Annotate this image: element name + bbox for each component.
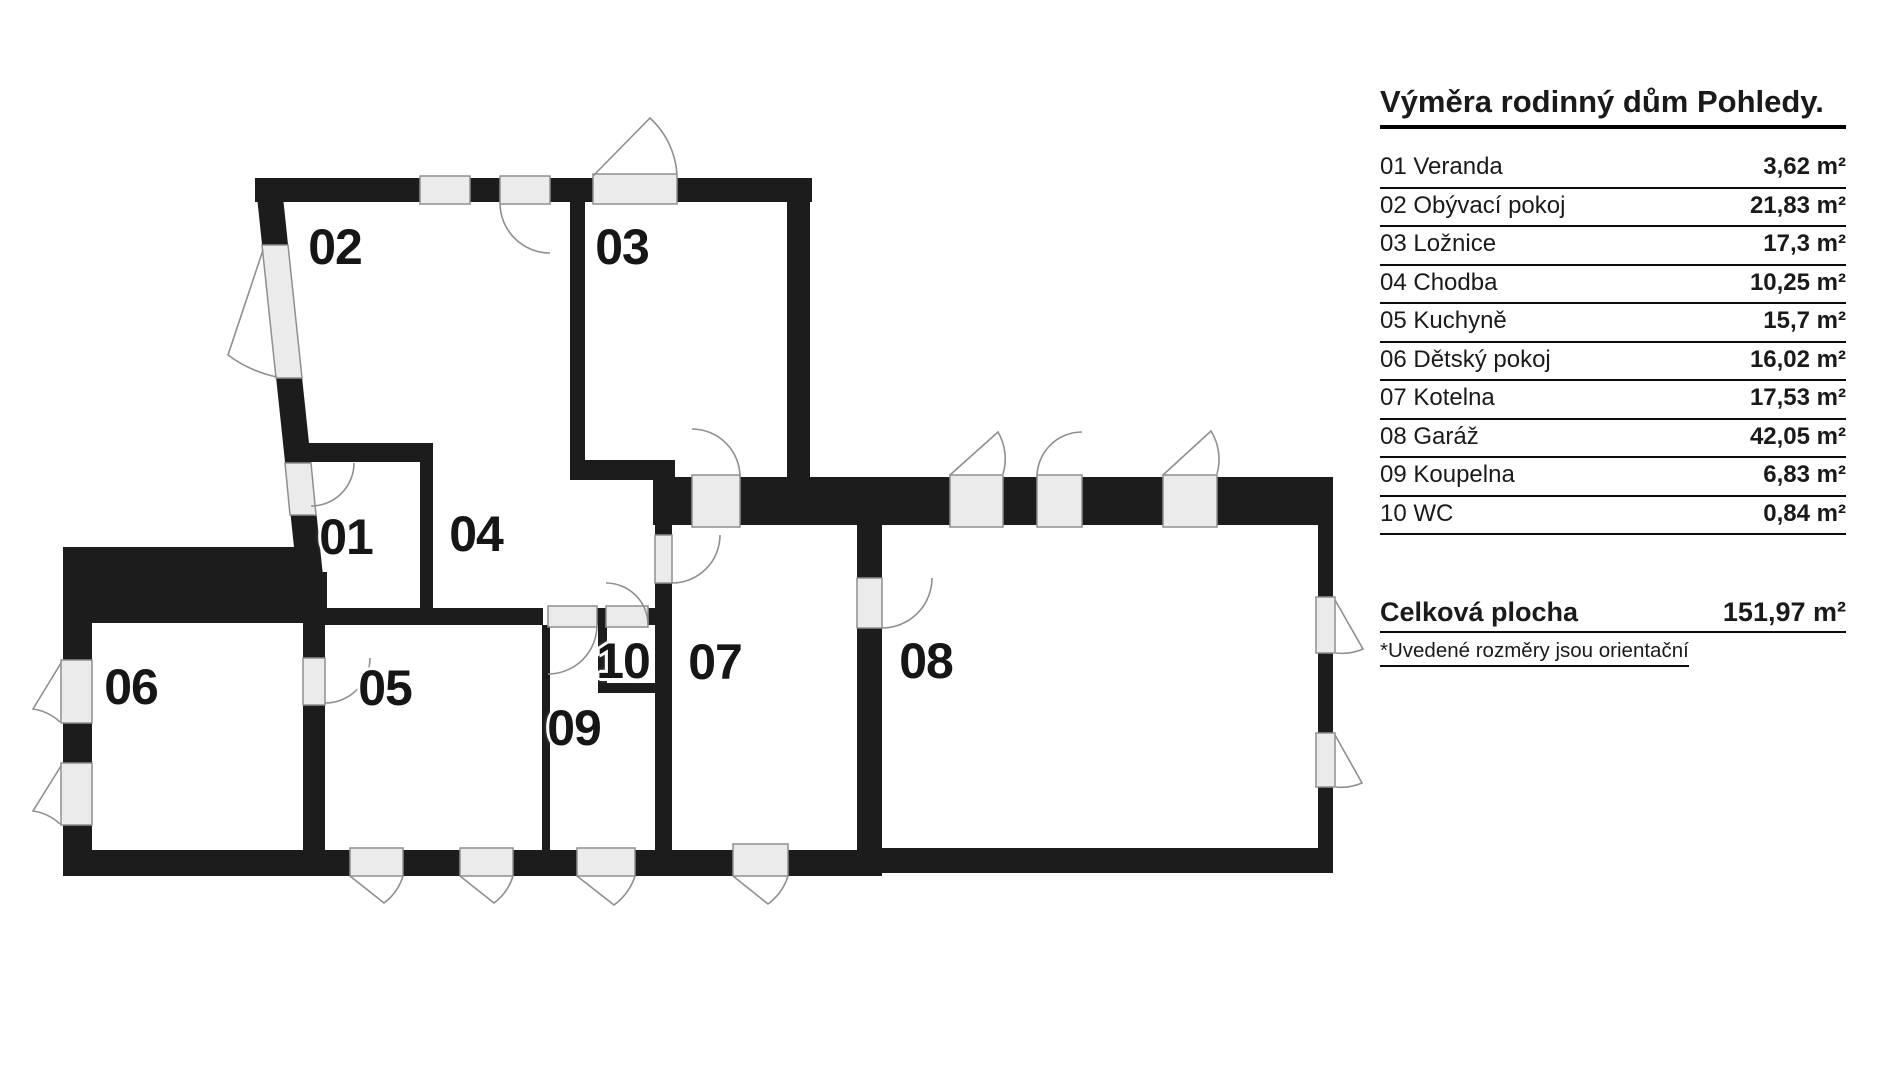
- window-swing-arc: [33, 766, 61, 824]
- window-swing-arc: [1335, 735, 1362, 787]
- window: [460, 848, 513, 876]
- legend-row: 07 Kotelna 17,53 m²: [1380, 381, 1846, 420]
- legend-row-name: 07 Kotelna: [1380, 381, 1495, 415]
- legend-row: 02 Obývací pokoj 21,83 m²: [1380, 189, 1846, 228]
- legend-row-name: 05 Kuchyně: [1380, 304, 1507, 338]
- legend-row-name: 04 Chodba: [1380, 266, 1497, 300]
- door-leaf: [655, 535, 672, 583]
- legend-row-name: 03 Ložnice: [1380, 227, 1496, 261]
- total-label: Celková plocha: [1380, 597, 1578, 628]
- door-swing-arc: [882, 578, 932, 628]
- door-swing-arc: [500, 203, 550, 253]
- legend-row: 10 WC 0,84 m²: [1380, 497, 1846, 536]
- room-label-05: 05: [358, 659, 412, 717]
- door-swing-arc: [548, 625, 597, 674]
- window: [61, 660, 92, 723]
- page: { "title": "Výměra rodinný dům Pohledy."…: [0, 0, 1900, 1069]
- room-label-09: 09: [547, 699, 601, 757]
- window: [262, 245, 302, 378]
- door-leaf: [1163, 475, 1217, 527]
- door-leaf: [733, 844, 788, 876]
- door-swing-arc: [672, 535, 720, 583]
- legend-row-area: 17,3 m²: [1763, 227, 1846, 261]
- door-swing-arc: [733, 876, 788, 904]
- window-swing-arc: [33, 663, 61, 722]
- door-leaf: [548, 606, 597, 627]
- room-label-06: 06: [104, 658, 158, 716]
- page-title: Výměra rodinný dům Pohledy.: [1380, 84, 1846, 129]
- window-swing-arc: [460, 876, 513, 903]
- room-label-07: 07: [688, 633, 742, 691]
- window: [1316, 597, 1335, 653]
- door-leaf: [857, 578, 882, 628]
- room-label-10: 10: [596, 632, 650, 690]
- window-swing-arc: [350, 876, 403, 903]
- legend-row-area: 3,62 m²: [1763, 150, 1846, 184]
- legend-rows: 01 Veranda 3,62 m² 02 Obývací pokoj 21,8…: [1380, 150, 1846, 535]
- room-label-01: 01: [319, 508, 373, 566]
- room-label-02: 02: [308, 218, 362, 276]
- door-leaf: [606, 606, 648, 627]
- room-label-08: 08: [899, 632, 953, 690]
- door-swing-arc: [1163, 431, 1219, 475]
- legend-row: 05 Kuchyně 15,7 m²: [1380, 304, 1846, 343]
- legend-row-name: 10 WC: [1380, 497, 1453, 531]
- door-swing-arc: [577, 876, 635, 905]
- door-leaf: [950, 475, 1003, 527]
- legend-row-name: 08 Garáž: [1380, 420, 1479, 454]
- door-swing-arc: [950, 432, 1005, 475]
- legend-row-name: 02 Obývací pokoj: [1380, 189, 1565, 223]
- legend-row-area: 21,83 m²: [1750, 189, 1846, 223]
- legend-row-name: 06 Dětský pokoj: [1380, 343, 1551, 377]
- door-swing-arc: [1037, 432, 1082, 477]
- legend-row-area: 42,05 m²: [1750, 420, 1846, 454]
- door-swing-arc: [593, 118, 677, 176]
- legend-row: 06 Dětský pokoj 16,02 m²: [1380, 343, 1846, 382]
- door-leaf: [593, 174, 677, 204]
- window-swing-arc: [1335, 600, 1363, 653]
- total-value: 151,97 m²: [1723, 597, 1846, 628]
- legend-note: *Uvedené rozměry jsou orientační: [1380, 639, 1689, 667]
- door-swing-arc: [311, 463, 354, 506]
- legend-row: 04 Chodba 10,25 m²: [1380, 266, 1846, 305]
- door-leaf: [285, 463, 316, 515]
- legend-row-area: 0,84 m²: [1763, 497, 1846, 531]
- legend-row-area: 10,25 m²: [1750, 266, 1846, 300]
- window: [350, 848, 403, 876]
- legend-row-area: 15,7 m²: [1763, 304, 1846, 338]
- window: [1316, 733, 1335, 787]
- door-swing-arc: [692, 429, 740, 477]
- door-leaf: [577, 848, 635, 876]
- room-label-04: 04: [449, 505, 503, 563]
- legend-row-name: 09 Koupelna: [1380, 458, 1515, 492]
- legend-panel: Výměra rodinný dům Pohledy. 01 Veranda 3…: [1380, 84, 1846, 667]
- door-leaf: [1037, 475, 1082, 527]
- window: [61, 763, 92, 825]
- legend-row-area: 6,83 m²: [1763, 458, 1846, 492]
- legend-row: 08 Garáž 42,05 m²: [1380, 420, 1846, 459]
- door-leaf: [500, 176, 550, 204]
- legend-row-area: 16,02 m²: [1750, 343, 1846, 377]
- legend-row: 01 Veranda 3,62 m²: [1380, 150, 1846, 189]
- legend-total-row: Celková plocha 151,97 m²: [1380, 597, 1846, 633]
- door-leaf: [692, 475, 740, 527]
- door-leaf: [303, 658, 325, 705]
- window: [420, 176, 470, 204]
- legend-row-area: 17,53 m²: [1750, 381, 1846, 415]
- room-label-03: 03: [595, 218, 649, 276]
- legend-row: 03 Ložnice 17,3 m²: [1380, 227, 1846, 266]
- legend-row: 09 Koupelna 6,83 m²: [1380, 458, 1846, 497]
- legend-row-name: 01 Veranda: [1380, 150, 1503, 184]
